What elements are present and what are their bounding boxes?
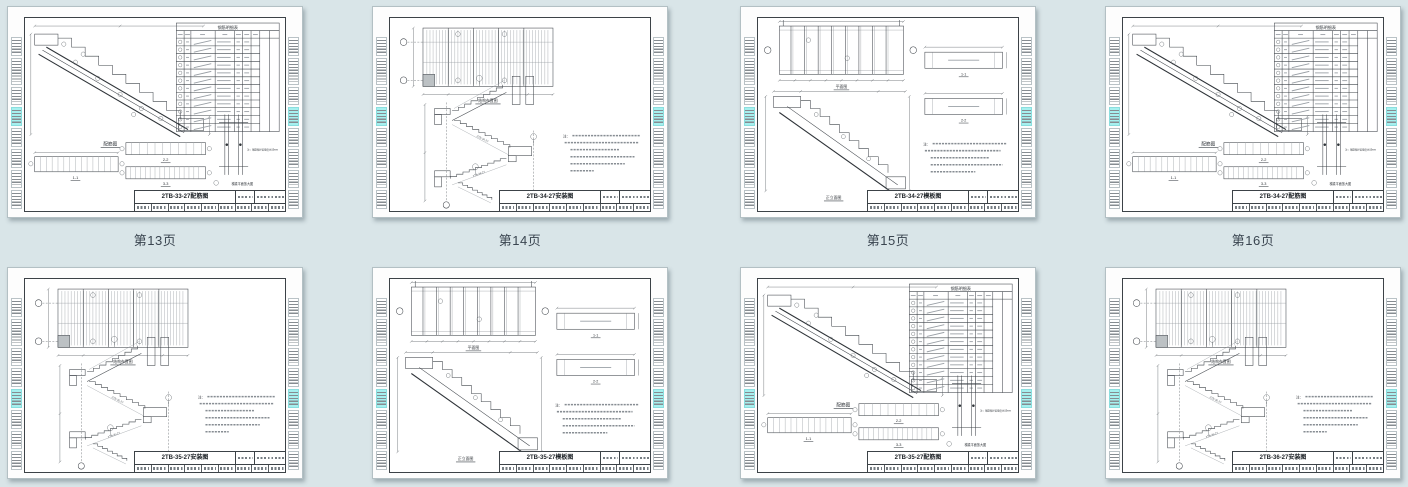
index-cell: [1109, 348, 1120, 367]
index-cell: [288, 190, 299, 209]
index-cell: [1109, 170, 1120, 189]
vertical-text-marks: [654, 110, 663, 123]
index-cell: [11, 451, 22, 470]
vertical-text-marks: [289, 152, 298, 165]
index-cell: [653, 149, 664, 168]
vertical-text-marks: [12, 434, 21, 447]
index-cell: [744, 368, 755, 387]
vertical-text-marks: [1387, 193, 1396, 206]
vertical-text-marks: [745, 301, 754, 314]
index-cell: [1109, 410, 1120, 429]
index-cell: [1386, 58, 1397, 85]
index-cell: [1021, 170, 1032, 189]
vertical-text-marks: [654, 371, 663, 384]
title-block-signature-cell: [219, 204, 236, 211]
sidebar-index-strip: [1021, 298, 1032, 470]
vertical-text-marks: [1387, 413, 1396, 426]
title-block-signature-cell: [1267, 204, 1284, 211]
drawing-page-thumbnail[interactable]: 配筋图钢筋明细表1-12-23-3梯梁平面放大图注：钢筋保护层厚度为15mm2T…: [1105, 6, 1401, 218]
index-cell: [1109, 58, 1120, 85]
figure-label: 1-1: [961, 72, 966, 76]
drawing-frame: 平面图正立面图1-12-2注：2TB-34-27模板图: [757, 17, 1019, 212]
figure-label: 2-2: [1261, 157, 1267, 162]
vertical-text-marks: [12, 413, 21, 426]
vertical-text-marks: [654, 40, 663, 53]
title-block-signature-cell: [252, 204, 269, 211]
index-cell-active: [1021, 389, 1032, 408]
drawing-canvas: 平面图正立面图1-12-2注：: [758, 18, 1018, 211]
index-cell: [1386, 190, 1397, 209]
index-cell: [1109, 87, 1120, 106]
title-block: 2TB-35-27安装图: [134, 451, 286, 473]
title-block-signature-cell: [634, 204, 650, 211]
sidebar-index-strip: [1109, 37, 1120, 209]
vertical-text-marks: [1387, 301, 1396, 314]
index-cell: [11, 319, 22, 346]
figure-label: 钢筋明细表: [951, 285, 971, 291]
figure-label: 注：钢筋保护层厚度为15mm: [980, 409, 1011, 413]
title-block-cell: [1333, 191, 1352, 203]
title-block-signature-cell: [534, 465, 551, 472]
title-block-signature-cell: [952, 204, 969, 211]
vertical-text-marks: [654, 301, 663, 314]
title-block-signature-cell: [1002, 204, 1018, 211]
index-cell: [1021, 149, 1032, 168]
index-cell-active: [744, 107, 755, 126]
page-number-label: 第16页: [1105, 230, 1401, 246]
sidebar-index-strip: [744, 298, 755, 470]
title-block-signature-cell: [152, 465, 169, 472]
index-cell: [288, 410, 299, 429]
title-block-cell: [987, 452, 1018, 464]
title-block-cell: [968, 452, 987, 464]
vertical-text-marks: [377, 110, 386, 123]
title-block-cell: [987, 191, 1018, 203]
index-cell: [1386, 170, 1397, 189]
index-cell: [288, 431, 299, 450]
vertical-text-marks: [12, 152, 21, 165]
vertical-text-marks: [289, 301, 298, 314]
index-cell: [653, 190, 664, 209]
index-cell: [288, 149, 299, 168]
vertical-text-marks: [745, 371, 754, 384]
index-cell: [1021, 58, 1032, 85]
vertical-text-marks: [1022, 90, 1031, 103]
index-cell-active: [653, 107, 664, 126]
title-block-signature-cell: [634, 465, 650, 472]
document-pages-grid: 配筋图钢筋明细表1-12-23-3梯梁平面放大图注：钢筋保护层厚度为15mm2T…: [0, 0, 1408, 487]
vertical-text-marks: [1387, 90, 1396, 103]
title-block-signature-cell: [185, 465, 202, 472]
flight-annotation: 2TB-34-27: [472, 170, 486, 179]
index-cell: [653, 128, 664, 147]
index-cell: [288, 170, 299, 189]
index-cell: [1021, 431, 1032, 450]
vertical-text-marks: [1110, 110, 1119, 123]
title-block: 2TB-36-27安装图: [1232, 451, 1384, 473]
title-block-cell: [235, 452, 254, 464]
vertical-text-marks: [289, 61, 298, 82]
index-cell: [11, 410, 22, 429]
index-cell: [288, 451, 299, 470]
vertical-text-marks: [1110, 413, 1119, 426]
index-cell: [1109, 37, 1120, 56]
index-cell: [1109, 451, 1120, 470]
figure-label: 配筋图: [103, 141, 117, 148]
vertical-text-marks: [289, 110, 298, 123]
title-block-signature-cell: [236, 465, 253, 472]
vertical-text-marks: [377, 131, 386, 144]
vertical-text-marks: [1110, 371, 1119, 384]
title-block-signature-cell: [935, 465, 952, 472]
vertical-text-marks: [654, 434, 663, 447]
figure-label: 平面图: [836, 84, 848, 89]
vertical-text-marks: [1110, 322, 1119, 343]
index-cell: [744, 319, 755, 346]
flight-annotation: 2TB-35-27: [107, 431, 121, 440]
vertical-text-marks: [12, 61, 21, 82]
figure-label: 注：: [563, 134, 570, 139]
title-block-signature-cell: [1300, 204, 1317, 211]
vertical-text-marks: [1022, 173, 1031, 186]
vertical-text-marks: [12, 110, 21, 123]
vertical-text-marks: [654, 61, 663, 82]
vertical-text-marks: [1022, 61, 1031, 82]
index-cell-active: [744, 389, 755, 408]
drawing-canvas: 结构布置图2TB-35-272TB-35-27注：: [25, 279, 285, 472]
index-cell: [376, 319, 387, 346]
index-cell: [744, 87, 755, 106]
index-cell: [1109, 368, 1120, 387]
sidebar-index-strip: [653, 37, 664, 209]
title-block-signature-cell: [902, 465, 919, 472]
vertical-text-marks: [654, 322, 663, 343]
title-block-cell: [619, 452, 650, 464]
title-block-cell: [619, 191, 650, 203]
title-block-cell: [1352, 452, 1383, 464]
index-cell: [653, 319, 664, 346]
vertical-text-marks: [1022, 371, 1031, 384]
figure-label: 2-2: [593, 379, 598, 383]
drawing-frame: 配筋图钢筋明细表1-12-23-3梯梁平面放大图注：钢筋保护层厚度为15mm2T…: [24, 17, 286, 212]
index-cell-active: [1021, 107, 1032, 126]
drawing-page-thumbnail[interactable]: 平面图正立面图1-12-2注：2TB-35-27模板图: [372, 267, 668, 479]
vertical-text-marks: [377, 40, 386, 53]
title-block-signature-cell: [617, 204, 634, 211]
vertical-text-marks: [377, 173, 386, 186]
title-block-signature-cell: [1317, 465, 1334, 472]
index-cell: [288, 298, 299, 317]
drawing-canvas: 配筋图钢筋明细表1-12-23-3梯梁平面放大图注：钢筋保护层厚度为15mm: [1123, 18, 1383, 211]
title-block-signature-cell: [1350, 465, 1367, 472]
sidebar-index-strip: [653, 298, 664, 470]
drawing-page-thumbnail[interactable]: 结构布置图2TB-35-272TB-35-27注：2TB-35-27安装图: [7, 267, 303, 479]
figure-label: 梯梁平面放大图: [231, 181, 253, 186]
index-cell: [11, 128, 22, 147]
title-block-signature-cell: [185, 204, 202, 211]
vertical-text-marks: [1022, 301, 1031, 314]
vertical-text-marks: [289, 392, 298, 405]
vertical-text-marks: [289, 131, 298, 144]
index-cell: [11, 298, 22, 317]
title-block-signature-cell: [567, 465, 584, 472]
title-block-signature-cell: [1334, 465, 1351, 472]
figure-label: 1-1: [73, 175, 79, 180]
index-cell: [744, 298, 755, 317]
index-cell: [1021, 319, 1032, 346]
vertical-text-marks: [654, 413, 663, 426]
vertical-text-marks: [1387, 351, 1396, 364]
figure-label: 正立面图: [826, 195, 842, 200]
index-cell-active: [1386, 389, 1397, 408]
figure-label: 3-3: [163, 181, 169, 186]
page-number-label: 第13页: [7, 230, 303, 246]
title-block-signature-cell: [1367, 465, 1383, 472]
vertical-text-marks: [377, 301, 386, 314]
title-block-signature-cell: [252, 465, 269, 472]
drawing-canvas: 结构布置图2TB-34-272TB-34-27注：: [390, 18, 650, 211]
vertical-text-marks: [289, 173, 298, 186]
vertical-text-marks: [745, 434, 754, 447]
index-cell: [376, 128, 387, 147]
title-block-signature-cell: [601, 465, 618, 472]
title-block-signature-cell: [202, 465, 219, 472]
vertical-text-marks: [1110, 152, 1119, 165]
figure-label: 配筋图: [836, 402, 850, 409]
figure-label: 2-2: [896, 418, 902, 423]
vertical-text-marks: [745, 322, 754, 343]
vertical-text-marks: [745, 131, 754, 144]
vertical-text-marks: [745, 413, 754, 426]
vertical-text-marks: [377, 193, 386, 206]
index-cell: [1021, 190, 1032, 209]
vertical-text-marks: [289, 351, 298, 364]
index-cell: [653, 368, 664, 387]
title-block-signature-cell: [1300, 465, 1317, 472]
drawing-frame: 平面图正立面图1-12-2注：2TB-35-27模板图: [389, 278, 651, 473]
index-cell: [376, 149, 387, 168]
drawing-canvas: 平面图正立面图1-12-2注：: [390, 279, 650, 472]
title-block-signature-cell: [885, 465, 902, 472]
vertical-text-marks: [745, 392, 754, 405]
drawing-page-thumbnail[interactable]: 平面图正立面图1-12-2注：2TB-34-27模板图: [740, 6, 1036, 218]
page-number-label: 第14页: [372, 230, 668, 246]
title-block-signature-cell: [1233, 204, 1250, 211]
vertical-text-marks: [654, 90, 663, 103]
index-cell: [653, 170, 664, 189]
figure-label: 钢筋明细表: [218, 24, 238, 30]
sidebar-index-strip: [11, 37, 22, 209]
index-cell: [1021, 368, 1032, 387]
title-block-signature-cell: [567, 204, 584, 211]
index-cell: [653, 37, 664, 56]
index-cell: [1386, 410, 1397, 429]
title-block-signature-cell: [584, 465, 601, 472]
sidebar-index-strip: [744, 37, 755, 209]
vertical-text-marks: [12, 392, 21, 405]
vertical-text-marks: [289, 371, 298, 384]
vertical-text-marks: [289, 40, 298, 53]
vertical-text-marks: [654, 193, 663, 206]
index-cell: [376, 37, 387, 56]
index-cell: [288, 128, 299, 147]
title-block: 2TB-34-27模板图: [867, 190, 1019, 212]
title-block-signature-cell: [985, 465, 1002, 472]
title-block-signature-cell: [236, 204, 253, 211]
drawing-title: 2TB-33-27配筋图: [135, 191, 235, 203]
vertical-text-marks: [12, 173, 21, 186]
drawing-page-thumbnail[interactable]: 结构布置图2TB-36-272TB-36-27注：2TB-36-27安装图: [1105, 267, 1401, 479]
vertical-text-marks: [289, 434, 298, 447]
sidebar-index-strip: [288, 298, 299, 470]
vertical-text-marks: [1110, 301, 1119, 314]
index-cell: [744, 410, 755, 429]
sidebar-index-strip: [1386, 37, 1397, 209]
title-block-cell: [254, 452, 285, 464]
figure-label: 钢筋明细表: [1316, 24, 1336, 30]
index-cell: [1021, 451, 1032, 470]
title-block: 2TB-35-27配筋图: [867, 451, 1019, 473]
vertical-text-marks: [1387, 110, 1396, 123]
vertical-text-marks: [377, 371, 386, 384]
index-cell: [11, 431, 22, 450]
sidebar-index-strip: [1021, 37, 1032, 209]
index-cell: [1109, 319, 1120, 346]
vertical-text-marks: [654, 173, 663, 186]
vertical-text-marks: [12, 322, 21, 343]
index-cell: [1386, 128, 1397, 147]
index-cell-active: [288, 389, 299, 408]
index-cell: [376, 348, 387, 367]
vertical-text-marks: [745, 61, 754, 82]
title-block-cell: [968, 191, 987, 203]
drawing-page-thumbnail[interactable]: 配筋图钢筋明细表1-12-23-3梯梁平面放大图注：钢筋保护层厚度为15mm2T…: [740, 267, 1036, 479]
index-cell: [288, 58, 299, 85]
index-cell: [653, 451, 664, 470]
index-cell: [288, 368, 299, 387]
title-block-signature-cell: [935, 204, 952, 211]
title-block-signature-cell: [902, 204, 919, 211]
title-block-signature-cell: [169, 465, 186, 472]
title-block-signature-cell: [952, 465, 969, 472]
index-cell: [11, 190, 22, 209]
index-cell: [744, 58, 755, 85]
vertical-text-marks: [1110, 351, 1119, 364]
drawing-title: 2TB-35-27模板图: [500, 452, 600, 464]
index-cell: [1109, 431, 1120, 450]
title-block-signature-cell: [534, 204, 551, 211]
index-cell: [288, 37, 299, 56]
vertical-text-marks: [1387, 392, 1396, 405]
index-cell: [1021, 37, 1032, 56]
index-cell-active: [376, 107, 387, 126]
index-cell: [376, 58, 387, 85]
figure-label: 2-2: [163, 157, 169, 162]
index-cell: [1386, 87, 1397, 106]
index-cell: [376, 298, 387, 317]
vertical-text-marks: [1110, 454, 1119, 467]
vertical-text-marks: [1387, 152, 1396, 165]
title-block-signature-cell: [517, 465, 534, 472]
title-block-signature-cell: [969, 204, 986, 211]
index-cell: [1386, 37, 1397, 56]
index-cell: [1109, 298, 1120, 317]
drawing-page-thumbnail[interactable]: 结构布置图2TB-34-272TB-34-27注：2TB-34-27安装图: [372, 6, 668, 218]
vertical-text-marks: [377, 392, 386, 405]
index-cell: [376, 368, 387, 387]
vertical-text-marks: [1110, 193, 1119, 206]
figure-label: 注：: [555, 403, 562, 408]
vertical-text-marks: [12, 193, 21, 206]
vertical-text-marks: [377, 351, 386, 364]
vertical-text-marks: [745, 173, 754, 186]
vertical-text-marks: [12, 351, 21, 364]
title-block-signature-cell: [269, 465, 285, 472]
vertical-text-marks: [1022, 392, 1031, 405]
index-cell: [11, 368, 22, 387]
index-cell: [744, 348, 755, 367]
vertical-text-marks: [745, 454, 754, 467]
drawing-page-thumbnail[interactable]: 配筋图钢筋明细表1-12-23-3梯梁平面放大图注：钢筋保护层厚度为15mm2T…: [7, 6, 303, 218]
index-cell: [744, 190, 755, 209]
title-block-cell: [254, 191, 285, 203]
index-cell: [744, 170, 755, 189]
vertical-text-marks: [745, 152, 754, 165]
vertical-text-marks: [377, 61, 386, 82]
figure-label: 注：: [1296, 395, 1303, 400]
index-cell: [1386, 348, 1397, 367]
title-block-signature-cell: [1233, 465, 1250, 472]
title-block-signature-cell: [135, 204, 152, 211]
flight-annotation: 2TB-36-27: [1205, 431, 1219, 440]
vertical-text-marks: [289, 413, 298, 426]
index-cell: [1386, 298, 1397, 317]
vertical-text-marks: [289, 454, 298, 467]
vertical-text-marks: [1387, 434, 1396, 447]
vertical-text-marks: [1387, 131, 1396, 144]
index-cell: [376, 170, 387, 189]
vertical-text-marks: [1110, 90, 1119, 103]
title-block-signature-cell: [1250, 465, 1267, 472]
title-block-signature-cell: [152, 204, 169, 211]
vertical-text-marks: [377, 413, 386, 426]
index-cell: [653, 410, 664, 429]
index-cell: [1386, 431, 1397, 450]
page-number-label: 第15页: [740, 230, 1036, 246]
drawing-title: 2TB-35-27配筋图: [868, 452, 968, 464]
index-cell: [11, 149, 22, 168]
vertical-text-marks: [745, 40, 754, 53]
figure-label: 2-2: [961, 118, 966, 122]
vertical-text-marks: [1387, 61, 1396, 82]
vertical-text-marks: [745, 193, 754, 206]
index-cell: [744, 451, 755, 470]
index-cell: [744, 149, 755, 168]
vertical-text-marks: [1022, 434, 1031, 447]
vertical-text-marks: [1022, 152, 1031, 165]
drawing-title: 2TB-36-27安装图: [1233, 452, 1333, 464]
index-cell: [376, 451, 387, 470]
index-cell: [11, 170, 22, 189]
index-cell: [288, 348, 299, 367]
index-cell: [1021, 87, 1032, 106]
drawing-canvas: 配筋图钢筋明细表1-12-23-3梯梁平面放大图注：钢筋保护层厚度为15mm: [25, 18, 285, 211]
index-cell: [1386, 319, 1397, 346]
index-cell: [653, 298, 664, 317]
figure-label: 注：: [923, 142, 930, 147]
vertical-text-marks: [1110, 434, 1119, 447]
title-block: 2TB-34-27安装图: [499, 190, 651, 212]
